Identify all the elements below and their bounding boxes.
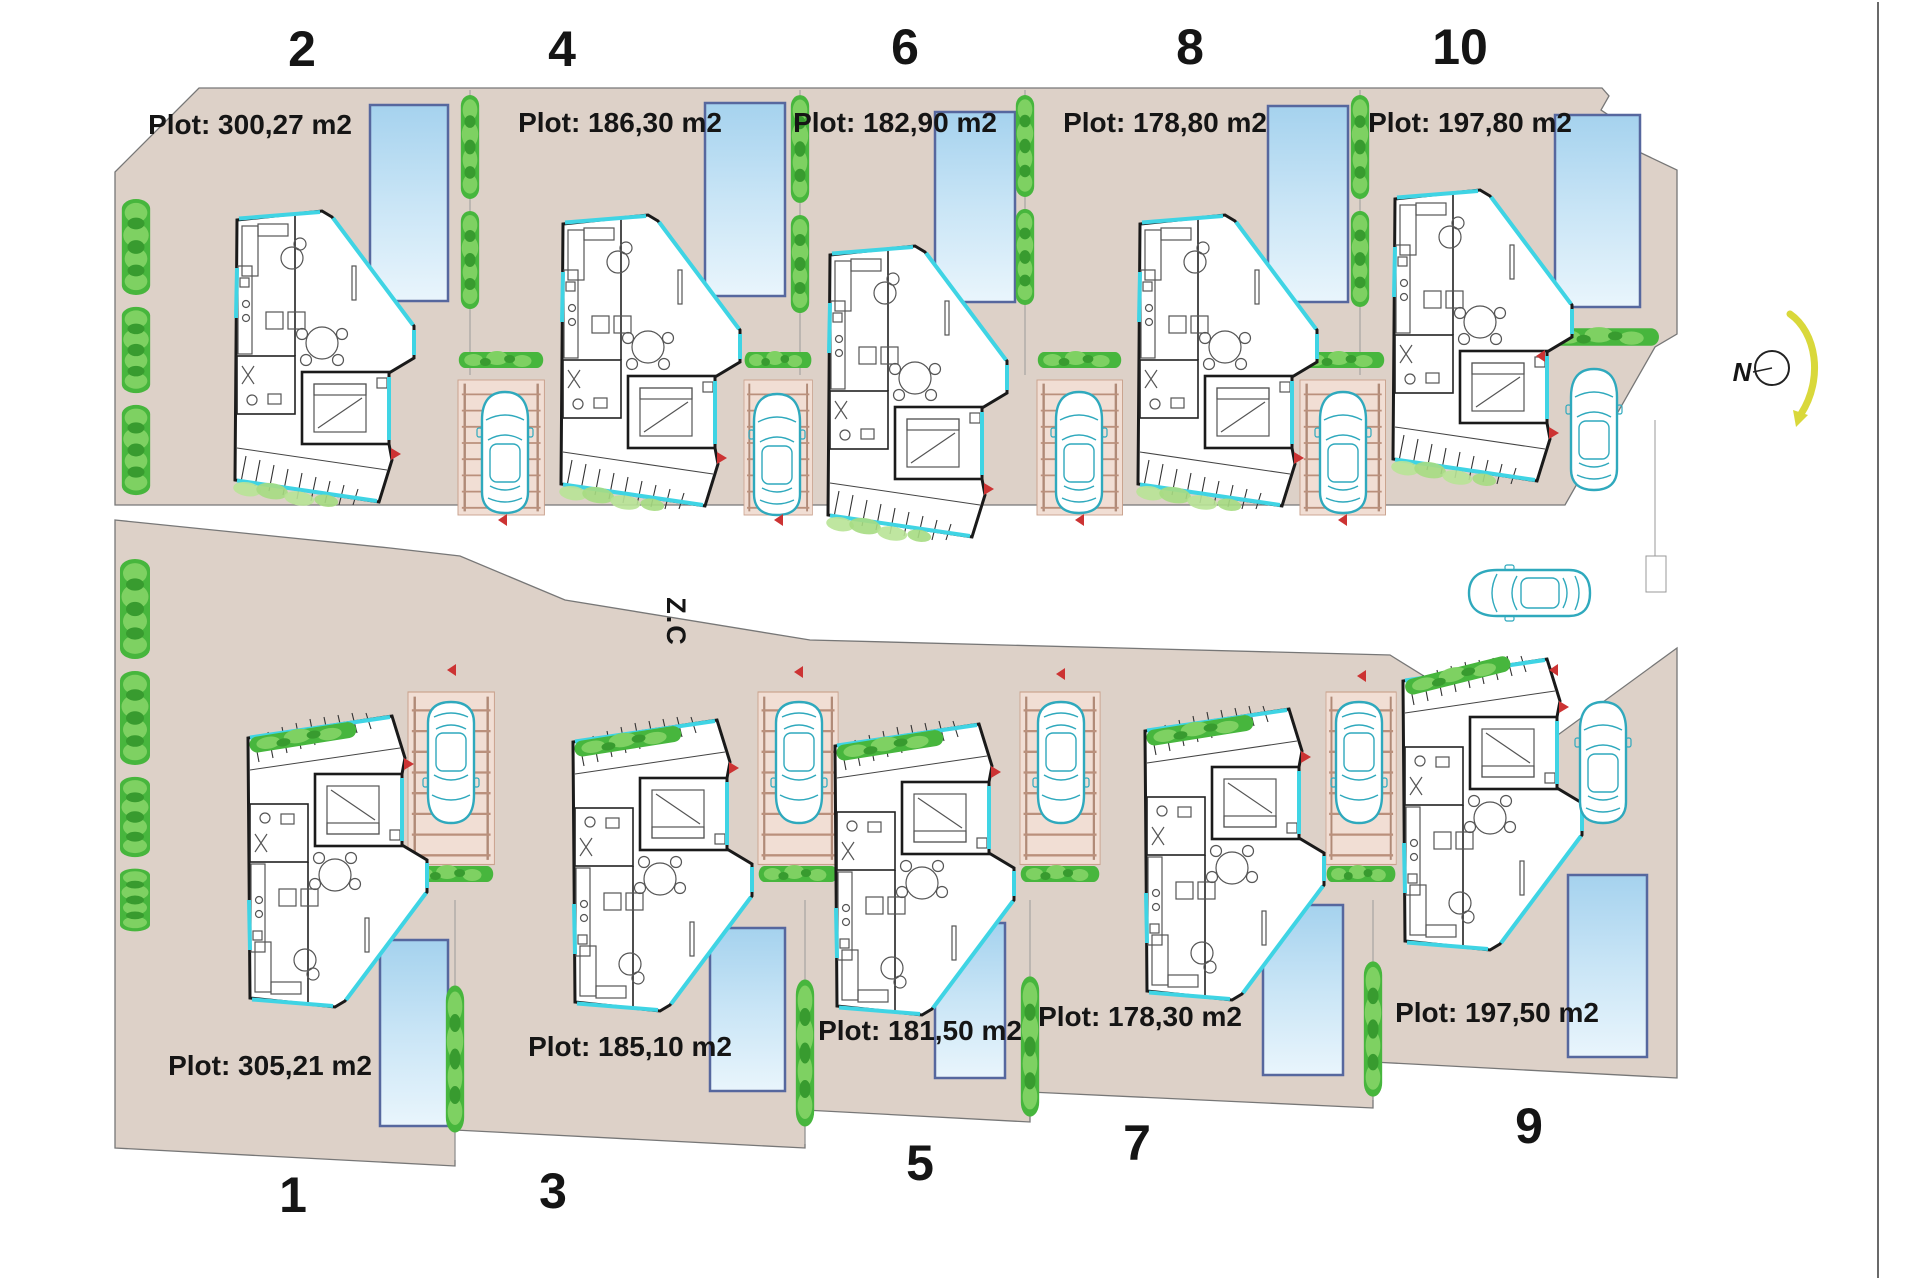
plot-8-pool <box>1268 106 1348 302</box>
plot-4-number: 4 <box>548 21 576 77</box>
plot-2-pool <box>370 105 448 301</box>
hedge-strip <box>796 980 814 1127</box>
hedge-strip <box>120 671 150 765</box>
plot-10-area-label: Plot: 197,80 m2 <box>1368 107 1572 138</box>
hedge-strip <box>120 559 150 659</box>
plot-7-number: 7 <box>1123 1115 1151 1171</box>
car-driveway-7-9 <box>1331 702 1387 823</box>
car-plot-9 <box>1575 702 1631 823</box>
site-plan: 2 4 6 8 10 1 3 5 7 9 Plot: 300,27 m2 Plo… <box>0 0 1920 1280</box>
plot-4-area-label: Plot: 186,30 m2 <box>518 107 722 138</box>
car-driveway-6-8 <box>1051 392 1107 513</box>
hedge-strip <box>791 215 809 313</box>
hedge-strip <box>759 865 838 882</box>
plot-5-area-label: Plot: 181,50 m2 <box>818 1015 1022 1046</box>
site-plan-page: 2 4 6 8 10 1 3 5 7 9 Plot: 300,27 m2 Plo… <box>0 0 1920 1280</box>
car-driveway-1-3 <box>423 702 479 823</box>
hedge-strip <box>1016 95 1034 197</box>
plot-8-area-label: Plot: 178,80 m2 <box>1063 107 1267 138</box>
hedge-strip <box>122 199 150 295</box>
hedge-strip <box>120 869 150 932</box>
car-driveway-3-5 <box>771 702 827 823</box>
hedge-strip <box>120 777 150 857</box>
hedge-strip <box>1021 976 1039 1116</box>
car-driveway-2-4 <box>477 392 533 513</box>
hedge-strip <box>461 211 479 309</box>
plot-9-area-label: Plot: 197,50 m2 <box>1395 997 1599 1028</box>
plot-9-pool <box>1568 875 1647 1057</box>
hedge-strip <box>1364 961 1382 1096</box>
hedge-strip <box>1351 95 1369 199</box>
plot-3-area-label: Plot: 185,10 m2 <box>528 1031 732 1062</box>
hedge-strip <box>461 95 479 199</box>
plot-1-number: 1 <box>279 1167 307 1223</box>
hedge-strip <box>1038 351 1121 368</box>
plot-8-number: 8 <box>1176 19 1204 75</box>
plot-3-pool <box>710 928 785 1091</box>
car-plot-10 <box>1566 369 1622 490</box>
plot-10-pool <box>1555 115 1640 307</box>
hedge-strip <box>1351 211 1369 307</box>
north-label: N <box>1733 357 1753 387</box>
plot-5-number: 5 <box>906 1135 934 1191</box>
street-label: Z.C <box>661 597 691 647</box>
hedge-strip <box>446 986 464 1133</box>
plot-2-number: 2 <box>288 21 316 77</box>
plot-6-number: 6 <box>891 19 919 75</box>
plot-6-area-label: Plot: 182,90 m2 <box>793 107 997 138</box>
hedge-strip <box>459 351 543 368</box>
hedge-strip <box>122 405 150 495</box>
plot-1-area-label: Plot: 305,21 m2 <box>168 1050 372 1081</box>
plot-1-pool <box>380 940 448 1126</box>
car-street <box>1469 565 1590 621</box>
car-driveway-4-6 <box>749 394 805 515</box>
hedge-strip <box>1016 209 1034 305</box>
car-driveway-5-7 <box>1033 702 1089 823</box>
hedge-strip <box>745 351 812 368</box>
hedge-strip <box>1327 865 1396 882</box>
plot-10-number: 10 <box>1432 19 1488 75</box>
hedge-strip <box>1021 865 1100 882</box>
hedge-strip <box>122 307 150 393</box>
street-gate-mark <box>1646 556 1666 592</box>
plot-3-number: 3 <box>539 1163 567 1219</box>
plot-7-area-label: Plot: 178,30 m2 <box>1038 1001 1242 1032</box>
plot-6-pool <box>935 112 1015 302</box>
plot-2-area-label: Plot: 300,27 m2 <box>148 109 352 140</box>
car-driveway-8-10 <box>1315 392 1371 513</box>
plot-9-number: 9 <box>1515 1098 1543 1154</box>
